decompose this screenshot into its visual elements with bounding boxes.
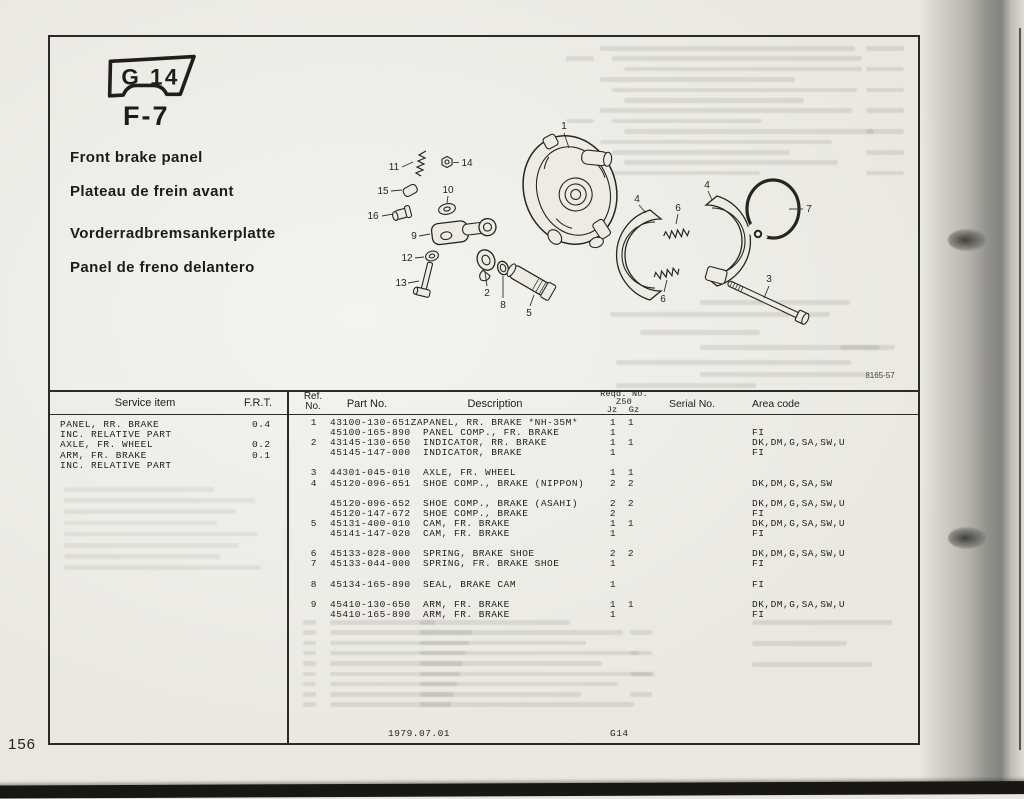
table-row: 45120-147-672SHOE COMP., BRAKE2FI — [300, 508, 915, 518]
washer-12-illustration — [424, 250, 439, 263]
table-row: 243145-130-650INDICATOR, RR. BRAKE11DK,D… — [300, 437, 915, 447]
binder-hole-bottom — [948, 527, 986, 549]
service-row: INC. RELATIVE PART — [60, 460, 290, 470]
table-row: 45145-147-000INDICATOR, BRAKE1FI — [300, 447, 915, 457]
table-row: 143100-130-651ZAPANEL, RR. BRAKE *NH-35M… — [300, 417, 915, 427]
callout-4-right: 4 — [704, 180, 710, 191]
table-row: 945410-130-650ARM, FR. BRAKE11DK,DM,G,SA… — [300, 599, 915, 609]
header-description: Description — [415, 398, 575, 410]
title-es: Panel de freno delantero — [70, 259, 255, 276]
description-cell: ARM, FR. BRAKE — [423, 609, 510, 620]
table-row: 45410-165-890ARM, FR. BRAKE1FI — [300, 609, 915, 619]
brake-shoe-left-illustration — [617, 210, 661, 300]
facing-page-edge — [1019, 28, 1021, 750]
header-area-code: Area code — [752, 398, 832, 410]
bolt-16-illustration — [391, 205, 412, 221]
callout-13: 13 — [395, 278, 407, 289]
callout-11: 11 — [389, 162, 400, 173]
brake-shoe-right-illustration — [705, 196, 751, 286]
callout-3: 3 — [766, 274, 772, 285]
callout-2: 2 — [484, 288, 490, 299]
header-part-no: Part No. — [322, 398, 412, 410]
header-qty-gz: Gz — [623, 405, 645, 415]
title-de: Vorderradbremsankerplatte — [70, 225, 276, 242]
brake-cam-illustration — [505, 261, 557, 301]
callout-4-left: 4 — [634, 194, 640, 205]
header-frt: F.R.T. — [228, 397, 288, 409]
table-row-spacer — [300, 568, 915, 578]
table-row-spacer — [300, 538, 915, 548]
qty-jz-cell: 1 — [606, 609, 620, 620]
binding-gutter-shadow — [920, 0, 1024, 791]
page-code: F-7 — [123, 101, 170, 132]
page-number: 156 — [8, 736, 36, 753]
table-row: 845134-165-890SEAL, BRAKE CAM1FI — [300, 579, 915, 589]
service-name-cell: INC. RELATIVE PART — [60, 460, 172, 471]
table-row-spacer — [300, 589, 915, 599]
retainer-clip-illustration — [747, 180, 799, 241]
callout-8: 8 — [500, 300, 506, 311]
table-top-rule — [48, 390, 920, 392]
title-fr: Plateau de frein avant — [70, 183, 234, 200]
callout-15: 15 — [377, 186, 389, 197]
callout-6-top: 6 — [675, 203, 681, 214]
callout-1: 1 — [561, 121, 567, 132]
binder-hole-top — [948, 229, 986, 251]
footer-date: 1979.07.01 — [388, 728, 450, 739]
section-badge: G 14 — [96, 54, 202, 104]
callout-7: 7 — [806, 204, 812, 215]
table-row-spacer — [300, 488, 915, 498]
pin-15-illustration — [402, 183, 419, 198]
title-en: Front brake panel — [70, 149, 203, 166]
table-row: 45141-147-020CAM, FR. BRAKE1FI — [300, 528, 915, 538]
callout-6-bottom: 6 — [660, 294, 666, 305]
badge-label: G 14 — [121, 65, 179, 90]
table-row-spacer — [300, 457, 915, 467]
header-service-item: Service item — [60, 397, 230, 409]
table-row: 445120-096-651SHOE COMP., BRAKE (NIPPON)… — [300, 478, 915, 488]
table-row: 745133-044-000SPRING, FR. BRAKE SHOE1FI — [300, 558, 915, 568]
service-row: ARM, FR. BRAKE0.1 — [60, 450, 290, 460]
shoe-spring-top-illustration — [663, 228, 690, 239]
table-row: 344301-045-010AXLE, FR. WHEEL11 — [300, 467, 915, 477]
spring-11-illustration — [416, 151, 426, 176]
area-code-cell: FI — [752, 609, 764, 620]
shoe-spring-bottom-illustration — [653, 267, 680, 280]
service-row: PANEL, RR. BRAKE0.4 — [60, 419, 290, 429]
table-row: 545131-400-010CAM, FR. BRAKE11DK,DM,G,SA… — [300, 518, 915, 528]
table-row: 45100-165-890PANEL COMP., FR. BRAKE1FI — [300, 427, 915, 437]
callout-16: 16 — [367, 211, 379, 222]
brake-arm-illustration — [431, 217, 498, 246]
service-item-list: PANEL, RR. BRAKE0.4INC. RELATIVE PARTAXL… — [60, 419, 290, 470]
table-row: 645133-028-000SPRING, BRAKE SHOE22DK,DM,… — [300, 548, 915, 558]
table-row: 45120-096-652SHOE COMP., BRAKE (ASAHI)22… — [300, 498, 915, 508]
service-row: INC. RELATIVE PART — [60, 429, 290, 439]
bolt-13-illustration — [413, 260, 437, 297]
parts-list: 143100-130-651ZAPANEL, RR. BRAKE *NH-35M… — [300, 417, 915, 619]
scan-edge-band — [0, 781, 1024, 799]
callout-12: 12 — [401, 253, 413, 264]
header-serial-no: Serial No. — [660, 398, 724, 410]
footer-section-code: G14 — [610, 728, 629, 739]
exploded-diagram: 1 11 14 15 10 16 9 12 13 2 8 5 4 6 6 4 7… — [360, 110, 920, 388]
callout-9: 9 — [411, 231, 417, 242]
part-no-cell: 45410-165-890 — [330, 609, 411, 620]
table-header-rule — [48, 414, 920, 415]
service-row: AXLE, FR. WHEEL0.2 — [60, 439, 290, 449]
callout-5: 5 — [526, 308, 532, 319]
washer-10-illustration — [438, 202, 457, 216]
callout-14: 14 — [461, 158, 473, 169]
callout-10: 10 — [442, 185, 454, 196]
nut-14-illustration — [442, 157, 452, 168]
figure-number: 8165-57 — [865, 371, 895, 380]
header-qty-jz: Jz — [601, 405, 623, 415]
